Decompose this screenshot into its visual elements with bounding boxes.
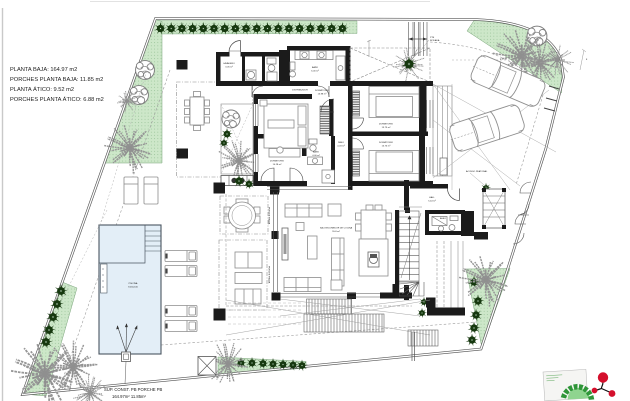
svg-text:LAVADERO: LAVADERO <box>223 62 235 65</box>
svg-text:PORCHE P.BAJA: PORCHE P.BAJA <box>268 266 271 284</box>
svg-text:SUP. CONST. PB PORCHE PB: SUP. CONST. PB PORCHE PB <box>104 387 163 392</box>
svg-text:PLANTA BAJA: 164.97 m2: PLANTA BAJA: 164.97 m2 <box>10 67 77 73</box>
svg-text:5.44 m²: 5.44 m² <box>428 199 436 202</box>
svg-text:BAÑO: BAÑO <box>313 151 319 154</box>
svg-text:SALON/COMEDOR DE COCINA: SALON/COMEDOR DE COCINA <box>320 227 353 230</box>
svg-text:6.00 m²: 6.00 m² <box>311 69 319 72</box>
svg-text:DORMITORIO: DORMITORIO <box>379 142 393 144</box>
svg-text:HALL: HALL <box>429 196 435 199</box>
svg-text:55.8 m²: 55.8 m² <box>332 230 340 233</box>
svg-text:PTE: PTE <box>430 37 435 39</box>
svg-text:ACCESO PEATONAL: ACCESO PEATONAL <box>466 170 488 173</box>
svg-text:DORMITORIO: DORMITORIO <box>270 161 284 163</box>
svg-text:DISTRIBUIDOR: DISTRIBUIDOR <box>292 90 308 92</box>
svg-text:PASO: PASO <box>338 141 344 144</box>
svg-text:PORCHES PLANTA BAJA: 11.85 m2: PORCHES PLANTA BAJA: 11.85 m2 <box>10 77 103 83</box>
svg-text:PORCHES PLANTA ÁTICO: 6.88 m2: PORCHES PLANTA ÁTICO: 6.88 m2 <box>10 96 104 103</box>
svg-text:4.00 m²: 4.00 m² <box>312 154 320 157</box>
svg-text:BAÑO: BAÑO <box>312 66 318 69</box>
svg-text:PORCHE P.BAJA: PORCHE P.BAJA <box>268 207 271 225</box>
svg-text:15.98 m²: 15.98 m² <box>318 92 327 95</box>
svg-text:164.97m² 11.85m²: 164.97m² 11.85m² <box>112 394 147 399</box>
svg-text:PISCINA: PISCINA <box>129 282 138 285</box>
svg-text:15.73 m²: 15.73 m² <box>382 145 391 148</box>
svg-text:DORMITORIO: DORMITORIO <box>379 124 393 126</box>
svg-text:8.00x4.00: 8.00x4.00 <box>128 286 138 288</box>
svg-text:4.03 m²: 4.03 m² <box>337 144 345 147</box>
svg-text:RODADA: RODADA <box>430 39 440 42</box>
svg-text:PLANTA ÁTICO: 9.52 m2: PLANTA ÁTICO: 9.52 m2 <box>10 86 74 93</box>
svg-text:3.05 m²: 3.05 m² <box>225 65 233 68</box>
svg-text:10.28 m²: 10.28 m² <box>273 163 282 166</box>
svg-text:ASEO: ASEO <box>440 217 446 220</box>
svg-text:13.73 m²: 13.73 m² <box>382 126 391 129</box>
